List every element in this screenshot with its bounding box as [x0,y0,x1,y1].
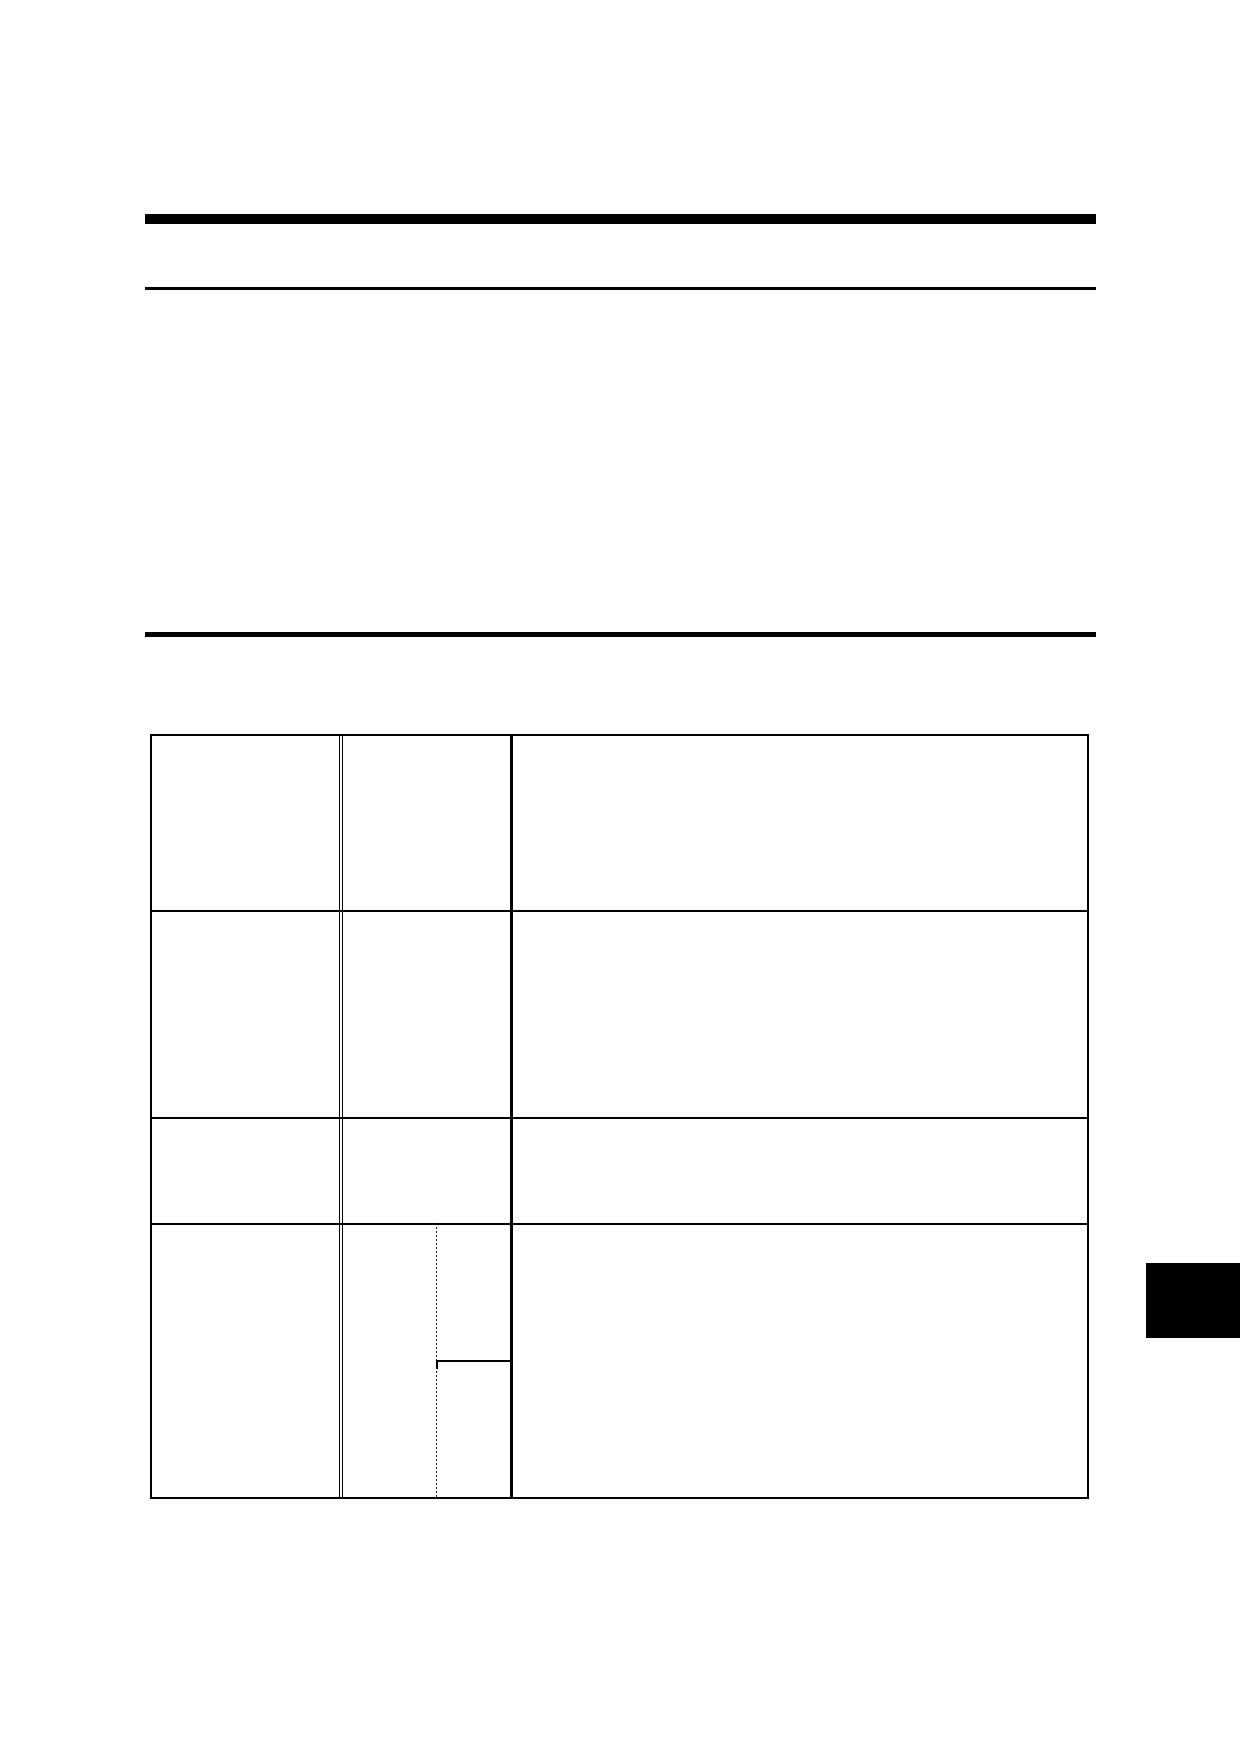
table-cell [152,1225,339,1497]
table-cell [513,736,1087,910]
table-cell [152,912,339,1117]
table-cell [343,736,510,910]
chapter-title-thick-rule [145,214,1096,224]
table-cell [513,1119,1087,1223]
document-page [0,0,1240,1754]
table-cell [437,1225,510,1497]
table-cell [343,912,510,1117]
table-cell [152,736,339,910]
page-edge-thumb-tab [1146,1263,1240,1338]
table-cell [513,912,1087,1117]
table-cell [343,1225,436,1497]
table-cell [513,1225,1087,1497]
section-heading-rule [145,632,1096,637]
data-table [150,734,1089,1499]
chapter-title-thin-rule [145,287,1096,290]
table-cell [343,1119,510,1223]
table-cell [152,1119,339,1223]
